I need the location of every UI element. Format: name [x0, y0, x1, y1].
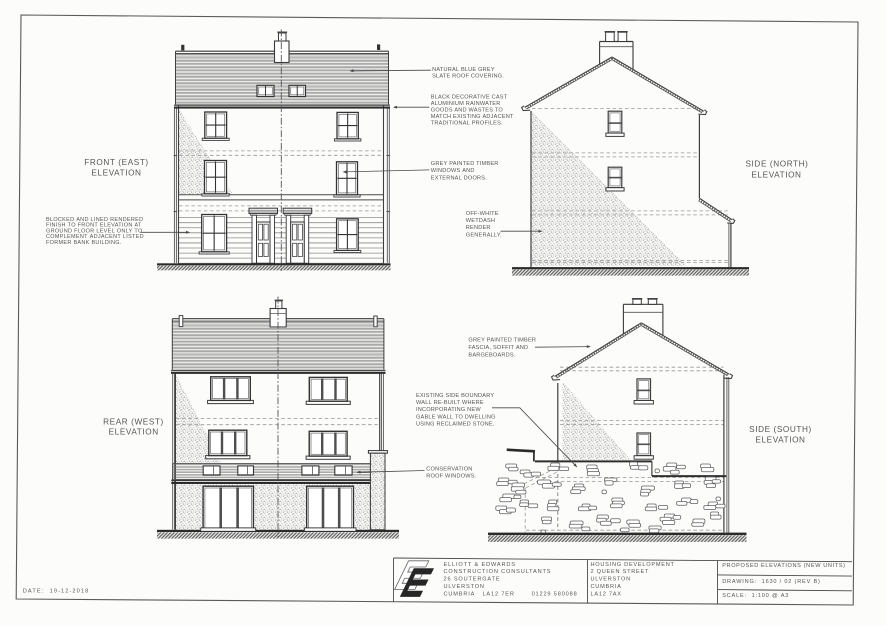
svg-text:GREY PAINTED TIMBER: GREY PAINTED TIMBER	[468, 338, 536, 344]
svg-text:FORMER BANK BUILDING.: FORMER BANK BUILDING.	[46, 240, 122, 246]
svg-text:WALL RE-BUILT WHERE: WALL RE-BUILT WHERE	[416, 400, 484, 406]
svg-text:2 QUEEN STREET: 2 QUEEN STREET	[591, 569, 650, 575]
svg-text:MATCH EXISTING ADJACENT: MATCH EXISTING ADJACENT	[431, 114, 514, 120]
svg-text:DATE: 19-12-2018: DATE: 19-12-2018	[23, 588, 89, 594]
svg-text:WETDASH: WETDASH	[466, 218, 495, 224]
svg-text:GENERALLY.: GENERALLY.	[466, 232, 502, 238]
svg-text:CUMBRIA: CUMBRIA	[591, 584, 622, 590]
svg-text:BARGEBOARDS.: BARGEBOARDS.	[468, 353, 515, 359]
svg-text:EXISTING SIDE BOUNDARY: EXISTING SIDE BOUNDARY	[416, 393, 494, 399]
svg-text:FRONT (EAST): FRONT (EAST)	[84, 158, 149, 167]
svg-text:LA12 7AX: LA12 7AX	[591, 592, 622, 598]
svg-text:CONSERVATION: CONSERVATION	[426, 467, 472, 473]
svg-text:ULVERSTON: ULVERSTON	[591, 576, 631, 582]
svg-text:SIDE (SOUTH): SIDE (SOUTH)	[749, 425, 812, 434]
svg-text:CUMBRIA LA12 7ER 01229: CUMBRIA LA12 7ER 01229 580088	[444, 592, 578, 598]
svg-text:WINDOWS AND: WINDOWS AND	[431, 168, 475, 174]
svg-text:SIDE (NORTH): SIDE (NORTH)	[746, 160, 809, 169]
svg-text:BLACK DECORATIVE CAST: BLACK DECORATIVE CAST	[431, 95, 508, 101]
svg-text:ELEVATION: ELEVATION	[91, 168, 141, 177]
svg-text:ULVERSTON: ULVERSTON	[444, 584, 485, 590]
svg-text:ELEVATION: ELEVATION	[751, 170, 801, 179]
svg-text:ELLIOTT & EDWARDS: ELLIOTT & EDWARDS	[444, 562, 516, 568]
svg-text:GREY PAINTED TIMBER: GREY PAINTED TIMBER	[431, 161, 499, 167]
svg-text:USING RECLAIMED STONE.: USING RECLAIMED STONE.	[416, 421, 495, 427]
svg-text:SLATE ROOF COVERING.: SLATE ROOF COVERING.	[432, 73, 504, 79]
svg-text:26 SOUTERGATE: 26 SOUTERGATE	[444, 576, 501, 582]
svg-text:FASCIA, SOFFIT AND: FASCIA, SOFFIT AND	[468, 345, 528, 351]
svg-text:HOUSING DEVELOPMENT: HOUSING DEVELOPMENT	[591, 562, 675, 568]
svg-text:INCORPORATING NEW: INCORPORATING NEW	[416, 407, 481, 413]
svg-text:OFF-WHITE: OFF-WHITE	[466, 211, 499, 217]
svg-text:NATURAL BLUE GREY: NATURAL BLUE GREY	[432, 67, 495, 73]
svg-text:ROOF WINDOWS.: ROOF WINDOWS.	[426, 474, 476, 480]
svg-text:PROPOSED ELEVATIONS (NEW UNITS: PROPOSED ELEVATIONS (NEW UNITS)	[722, 563, 845, 569]
svg-text:TRADITIONAL PROFILES.: TRADITIONAL PROFILES.	[431, 121, 503, 127]
svg-text:GABLE WALL TO DWELLING: GABLE WALL TO DWELLING	[416, 414, 496, 420]
svg-text:DRAWING: 1630 / 02 (REV B): DRAWING: 1630 / 02 (REV B)	[722, 579, 820, 585]
svg-text:RENDER: RENDER	[466, 225, 491, 231]
svg-text:CONSTRUCTION CONSULTANTS: CONSTRUCTION CONSULTANTS	[444, 569, 552, 575]
svg-text:ELEVATION: ELEVATION	[755, 435, 805, 444]
svg-text:SCALE: 1:100 @ A3: SCALE: 1:100 @ A3	[722, 593, 789, 599]
svg-text:REAR (WEST): REAR (WEST)	[103, 417, 164, 426]
svg-text:ALUMINIUM RAINWATER: ALUMINIUM RAINWATER	[431, 101, 501, 107]
svg-text:EXTERNAL DOORS.: EXTERNAL DOORS.	[431, 175, 487, 181]
svg-text:ELEVATION: ELEVATION	[109, 428, 159, 437]
svg-text:GOODS AND WASTES TO: GOODS AND WASTES TO	[431, 108, 504, 114]
